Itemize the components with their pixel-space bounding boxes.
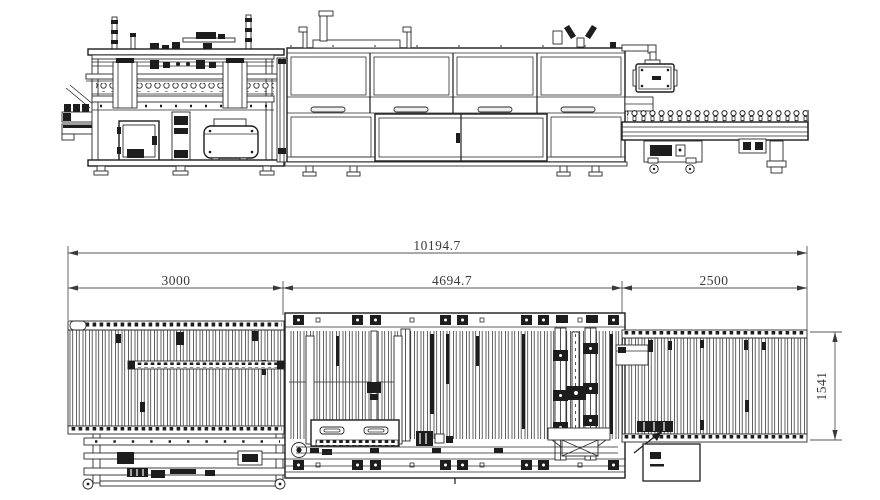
overall-length-label: 10194.7 — [413, 238, 460, 253]
roller-ends-row — [627, 110, 807, 122]
dimension-overall: 10194.7 — [68, 238, 807, 256]
dimension-infeed: 3000 — [68, 273, 283, 291]
drive-cart — [644, 141, 702, 173]
plan-view: 10194.7 3000 4694.7 2500 1541 — [68, 238, 842, 489]
conveyor-motor — [739, 139, 766, 153]
exhaust-pipe — [320, 13, 327, 41]
conveyor-width-label: 1541 — [814, 372, 829, 401]
tunnel-machine-elevation — [285, 11, 627, 176]
outfeed-length-label: 2500 — [700, 273, 729, 288]
vacuum-pump — [204, 119, 258, 163]
transfer-plate — [616, 345, 648, 365]
guide-bar — [128, 361, 284, 369]
roof-accessories — [290, 11, 622, 48]
elevation-view — [62, 11, 808, 176]
machine-feet — [94, 166, 274, 175]
y-valve — [564, 25, 597, 47]
infeed-underframe — [83, 434, 291, 489]
sliding-doors — [375, 114, 547, 161]
outfeed-drive-motor — [637, 421, 673, 432]
infeed-attachment — [62, 85, 94, 140]
dimension-width: 1541 — [810, 332, 842, 440]
dimension-outfeed: 2500 — [622, 273, 807, 291]
case-machine-elevation — [86, 15, 287, 175]
electrical-box-elevation — [622, 45, 677, 92]
center-pillar — [172, 112, 190, 162]
outfeed-conveyor-elevation — [622, 97, 808, 173]
infeed-length-label: 3000 — [162, 273, 191, 288]
tunnel-feet — [303, 166, 602, 176]
carriage-motor — [416, 431, 433, 446]
machine-line-drawing: 10194.7 3000 4694.7 2500 1541 — [0, 0, 880, 500]
frame-top-rail — [88, 49, 284, 55]
machine-plan — [285, 313, 625, 484]
infeed-conveyor-plan — [68, 321, 291, 489]
outfeed-conveyor-plan — [616, 330, 807, 481]
conveyor-leg — [767, 141, 786, 173]
dimension-machine: 4694.7 — [283, 273, 622, 291]
machine-length-label: 4694.7 — [432, 273, 472, 288]
cad-drawing-canvas: 10194.7 3000 4694.7 2500 1541 — [0, 0, 880, 500]
outfeed-rollers — [622, 338, 807, 434]
drive-motor — [117, 452, 134, 464]
